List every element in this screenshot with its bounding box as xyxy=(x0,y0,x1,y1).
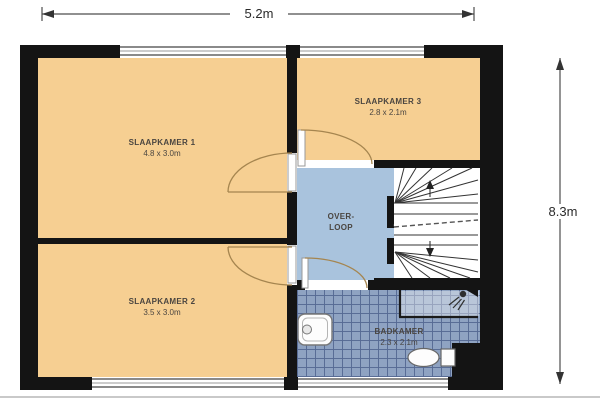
door-arc-slaapkamer-3 xyxy=(301,130,372,164)
toilet-fixture xyxy=(408,349,455,367)
door-leaf-slaapkamer-1 xyxy=(288,154,296,191)
door-arc-slaapkamer-1 xyxy=(228,153,292,192)
door-arc-slaapkamer-2 xyxy=(228,247,292,285)
bathroom-fixtures xyxy=(298,290,478,367)
dimension-height xyxy=(556,58,564,384)
door-leaf-slaapkamer-3 xyxy=(298,130,305,166)
dimension-arrow-top-icon xyxy=(556,58,564,70)
dimension-height-label: 8.3m xyxy=(534,204,592,219)
dimension-arrow-left-icon xyxy=(42,10,54,18)
floor-plan-canvas: SLAAPKAMER 1 4.8 x 3.0m SLAAPKAMER 2 3.5… xyxy=(0,0,600,400)
plan-overlay xyxy=(0,0,600,400)
door-arc-badkamer xyxy=(305,258,367,288)
door-leaf-badkamer xyxy=(302,258,308,288)
dimension-arrow-bottom-icon xyxy=(556,372,564,384)
stairs xyxy=(394,168,478,297)
shower-head-icon xyxy=(449,291,466,310)
stairs-upper-winders xyxy=(395,168,478,203)
dimension-arrow-right-icon xyxy=(462,10,474,18)
image-bottom-edge xyxy=(0,396,600,398)
stairs-lower-winders xyxy=(395,252,478,278)
stairs-up-arrow-icon xyxy=(426,180,434,189)
dimension-width-label: 5.2m xyxy=(230,6,288,21)
door-leaf-slaapkamer-2 xyxy=(288,246,296,283)
bathtub-fixture xyxy=(298,314,332,345)
door-leaves xyxy=(288,130,308,288)
